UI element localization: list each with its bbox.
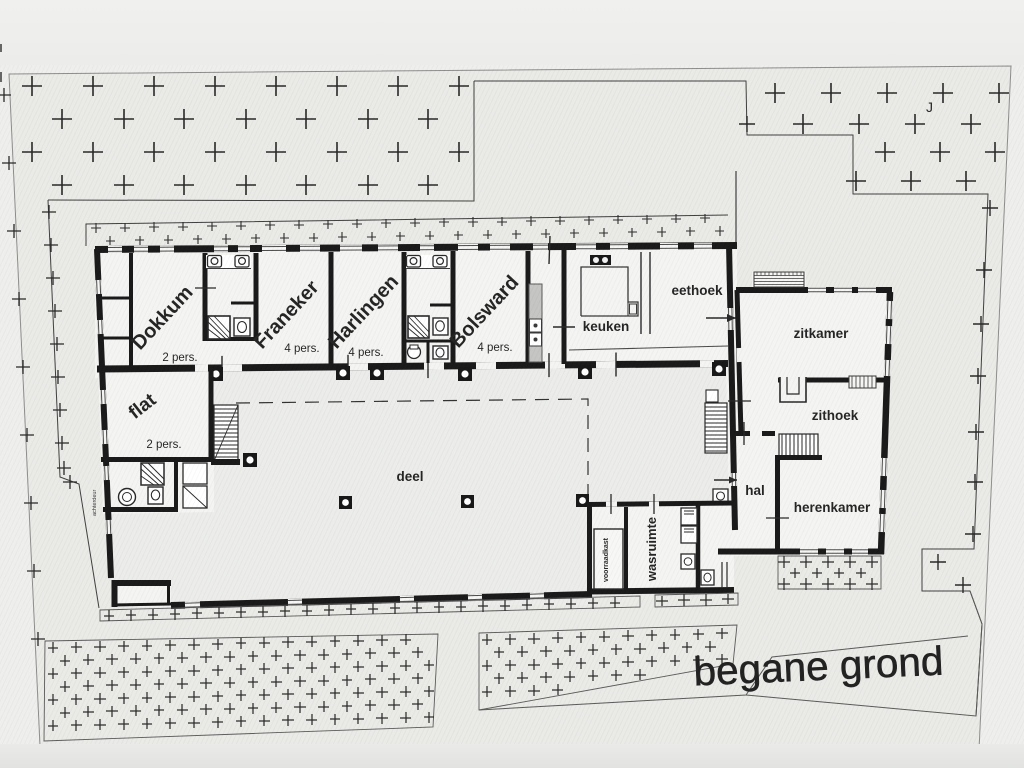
svg-text:hal: hal xyxy=(745,483,765,498)
svg-text:herenkamer: herenkamer xyxy=(794,500,871,515)
svg-text:eethoek: eethoek xyxy=(671,283,723,298)
svg-text:achterdeur: achterdeur xyxy=(92,490,98,516)
svg-text:4 pers.: 4 pers. xyxy=(477,342,512,354)
svg-text:zithoek: zithoek xyxy=(812,408,859,423)
svg-text:deel: deel xyxy=(396,469,423,484)
svg-text:4 pers.: 4 pers. xyxy=(284,343,319,355)
svg-text:voorraadkast: voorraadkast xyxy=(603,537,610,582)
svg-text:2 pers.: 2 pers. xyxy=(146,439,181,451)
svg-text:4 pers.: 4 pers. xyxy=(348,347,383,359)
svg-text:wasruimte: wasruimte xyxy=(644,517,659,582)
svg-text:2 pers.: 2 pers. xyxy=(162,352,197,364)
svg-text:zitkamer: zitkamer xyxy=(794,326,850,341)
svg-text:keuken: keuken xyxy=(583,319,630,334)
svg-text:J: J xyxy=(926,99,933,115)
